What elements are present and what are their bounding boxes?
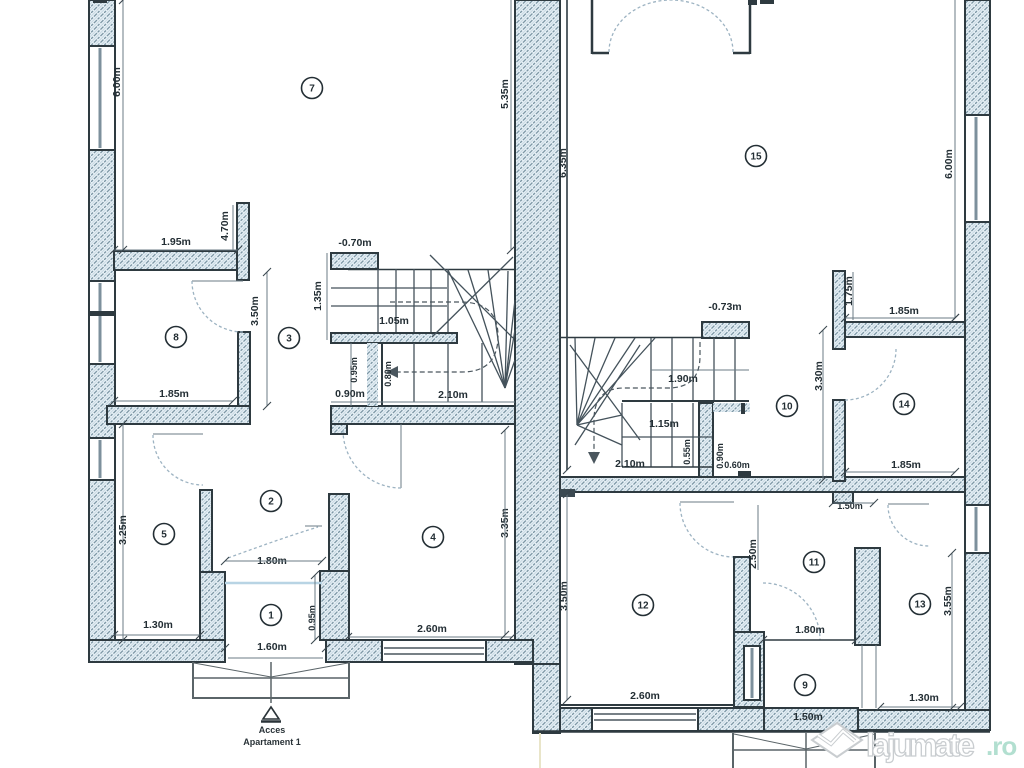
svg-text:1.85m: 1.85m [159,388,189,400]
svg-text:1.85m: 1.85m [891,459,921,471]
svg-text:1.60m: 1.60m [257,641,287,653]
svg-text:3.50m: 3.50m [558,581,570,611]
svg-text:Apartament 1: Apartament 1 [243,737,301,747]
svg-text:0.60m: 0.60m [724,460,750,470]
svg-text:10: 10 [781,402,793,413]
svg-text:Acces: Acces [259,725,286,735]
svg-text:12: 12 [637,601,649,612]
svg-text:.ro: .ro [986,731,1016,761]
svg-text:1.50m: 1.50m [793,711,823,723]
svg-text:0.55m: 0.55m [682,439,692,465]
svg-text:11: 11 [809,558,820,569]
svg-text:6.00m: 6.00m [943,149,955,179]
svg-text:8: 8 [173,333,179,344]
svg-text:1.30m: 1.30m [909,692,939,704]
svg-text:2.60m: 2.60m [417,623,447,635]
svg-text:6.00m: 6.00m [111,67,123,97]
svg-text:0.80m: 0.80m [383,361,393,387]
svg-text:3: 3 [286,334,292,345]
svg-text:2: 2 [268,497,274,508]
svg-text:7: 7 [309,84,315,95]
svg-text:15: 15 [750,152,762,163]
svg-text:1.85m: 1.85m [889,305,919,317]
svg-text:3.25m: 3.25m [117,515,129,545]
svg-text:14: 14 [898,400,910,411]
svg-text:-0.70m: -0.70m [338,237,371,249]
svg-text:3.50m: 3.50m [249,296,261,326]
svg-text:4.70m: 4.70m [219,211,231,241]
svg-text:5.35m: 5.35m [499,79,511,109]
svg-text:1.80m: 1.80m [795,624,825,636]
svg-text:1: 1 [268,611,274,622]
svg-text:1.35m: 1.35m [312,281,324,311]
svg-text:0.90m: 0.90m [715,443,725,469]
svg-text:lajumate: lajumate [866,727,974,763]
svg-text:5: 5 [161,530,167,541]
svg-text:6.35m: 6.35m [557,148,569,178]
svg-text:2.60m: 2.60m [630,690,660,702]
svg-text:13: 13 [914,600,926,611]
svg-text:4: 4 [430,533,436,544]
svg-text:0.90m: 0.90m [335,388,365,400]
svg-text:2.50m: 2.50m [747,539,759,569]
svg-text:0.95m: 0.95m [349,357,359,383]
svg-text:1.90m: 1.90m [668,373,698,385]
svg-text:1.95m: 1.95m [161,236,191,248]
svg-text:2.10m: 2.10m [615,458,645,470]
svg-text:-0.73m: -0.73m [708,301,741,313]
svg-text:1.05m: 1.05m [379,315,409,327]
svg-text:9: 9 [802,681,808,692]
svg-text:2.10m: 2.10m [438,389,468,401]
svg-text:1.15m: 1.15m [649,418,679,430]
svg-text:1.30m: 1.30m [143,619,173,631]
